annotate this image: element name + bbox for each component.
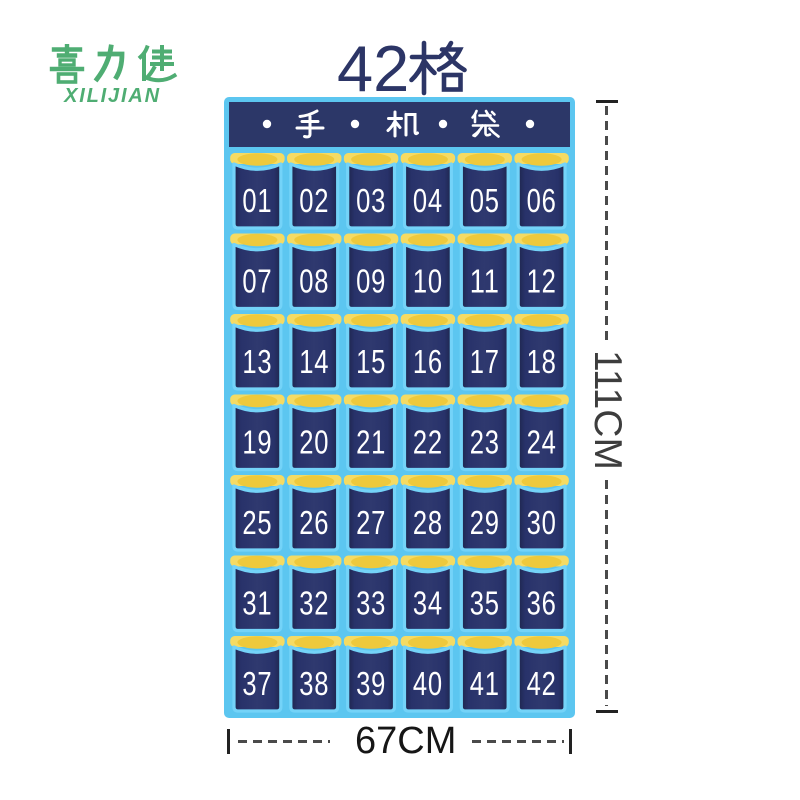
svg-text:05: 05 xyxy=(470,182,500,219)
svg-text:40: 40 xyxy=(413,665,443,702)
svg-text:09: 09 xyxy=(356,263,386,300)
svg-text:32: 32 xyxy=(299,585,329,622)
svg-text:03: 03 xyxy=(356,182,386,219)
svg-text:16: 16 xyxy=(413,343,443,380)
svg-text:01: 01 xyxy=(242,182,272,219)
svg-text:19: 19 xyxy=(242,424,272,461)
svg-text:17: 17 xyxy=(470,343,500,380)
svg-text:27: 27 xyxy=(356,504,386,541)
svg-text:33: 33 xyxy=(356,585,386,622)
svg-text:14: 14 xyxy=(299,343,329,380)
svg-text:25: 25 xyxy=(242,504,272,541)
svg-text:13: 13 xyxy=(242,343,272,380)
svg-text:34: 34 xyxy=(413,585,443,622)
svg-text:36: 36 xyxy=(527,585,557,622)
svg-text:38: 38 xyxy=(299,665,329,702)
svg-text:20: 20 xyxy=(299,424,329,461)
svg-text:18: 18 xyxy=(527,343,557,380)
svg-text:39: 39 xyxy=(356,665,386,702)
svg-text:04: 04 xyxy=(413,182,443,219)
svg-text:31: 31 xyxy=(242,585,272,622)
svg-text:24: 24 xyxy=(527,424,557,461)
svg-text:07: 07 xyxy=(242,263,272,300)
svg-text:10: 10 xyxy=(413,263,443,300)
svg-text:15: 15 xyxy=(356,343,386,380)
svg-text:12: 12 xyxy=(527,263,557,300)
svg-text:37: 37 xyxy=(242,665,272,702)
svg-text:26: 26 xyxy=(299,504,329,541)
svg-text:35: 35 xyxy=(470,585,500,622)
svg-text:29: 29 xyxy=(470,504,500,541)
svg-text:06: 06 xyxy=(527,182,557,219)
svg-text:02: 02 xyxy=(299,182,329,219)
svg-text:23: 23 xyxy=(470,424,500,461)
svg-text:30: 30 xyxy=(527,504,557,541)
svg-text:41: 41 xyxy=(470,665,500,702)
svg-text:08: 08 xyxy=(299,263,329,300)
svg-text:11: 11 xyxy=(470,263,500,300)
svg-text:28: 28 xyxy=(413,504,443,541)
svg-text:21: 21 xyxy=(356,424,386,461)
svg-text:22: 22 xyxy=(413,424,443,461)
svg-text:42: 42 xyxy=(527,665,557,702)
